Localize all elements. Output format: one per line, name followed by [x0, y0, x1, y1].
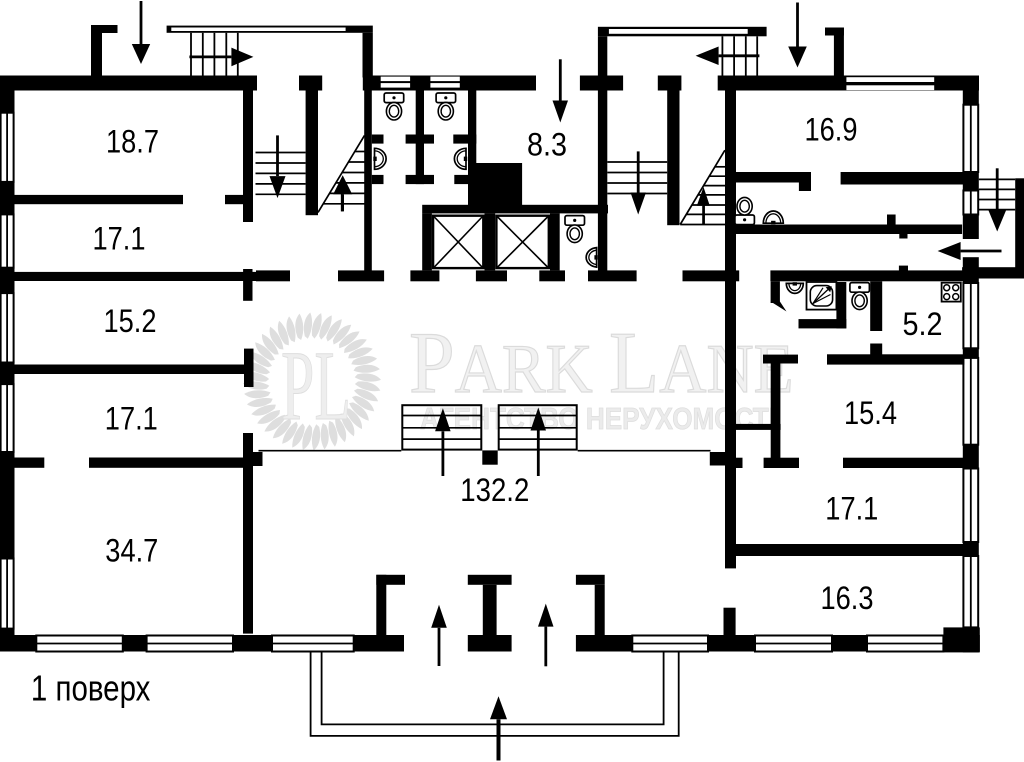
- svg-text:PARK LANE: PARK LANE: [409, 314, 794, 411]
- svg-text:15.4: 15.4: [844, 395, 897, 431]
- svg-text:PL: PL: [281, 330, 351, 441]
- svg-text:АГЕНТСТВО НЕРУХОМОСТІ: АГЕНТСТВО НЕРУХОМОСТІ: [420, 401, 776, 436]
- svg-text:34.7: 34.7: [105, 533, 158, 569]
- svg-text:132.2: 132.2: [460, 472, 529, 508]
- svg-text:17.1: 17.1: [825, 490, 878, 526]
- svg-text:17.1: 17.1: [93, 220, 146, 256]
- svg-text:8.3: 8.3: [527, 126, 567, 162]
- svg-text:5.2: 5.2: [903, 306, 943, 342]
- svg-text:16.3: 16.3: [821, 580, 874, 616]
- svg-text:1 поверх: 1 поверх: [31, 668, 150, 709]
- svg-text:18.7: 18.7: [106, 123, 159, 159]
- svg-text:16.9: 16.9: [805, 112, 858, 148]
- svg-text:17.1: 17.1: [105, 400, 158, 436]
- svg-text:15.2: 15.2: [104, 303, 157, 339]
